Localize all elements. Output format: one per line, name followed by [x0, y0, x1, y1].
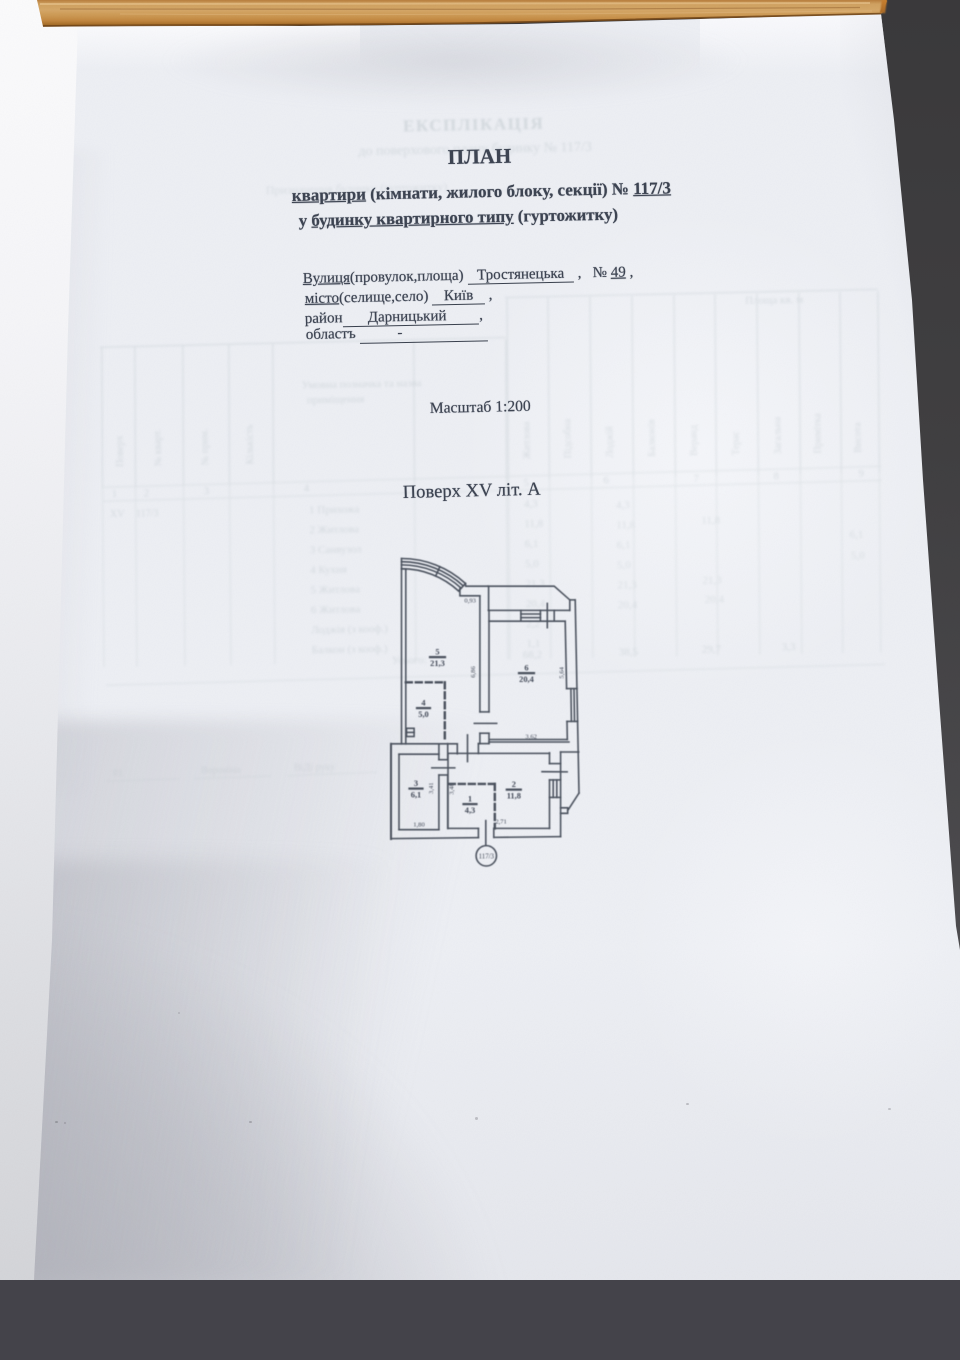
svg-text:11,8: 11,8 [507, 791, 521, 800]
svg-text:1,80: 1,80 [413, 822, 425, 829]
svg-text:117/3: 117/3 [479, 853, 495, 860]
svg-text:3: 3 [414, 779, 418, 788]
svg-text:6: 6 [524, 664, 528, 673]
svg-text:2: 2 [512, 780, 516, 789]
svg-text:5,64: 5,64 [558, 666, 565, 678]
svg-text:5: 5 [435, 648, 439, 657]
svg-text:5,0: 5,0 [418, 710, 428, 719]
svg-text:3,41: 3,41 [428, 782, 435, 794]
svg-text:6,86: 6,86 [470, 666, 477, 678]
svg-text:3,48: 3,48 [449, 783, 456, 795]
svg-text:21,3: 21,3 [430, 659, 445, 668]
svg-text:20,4: 20,4 [519, 675, 534, 684]
svg-text:0,93: 0,93 [464, 598, 476, 605]
svg-text:1: 1 [468, 795, 472, 804]
svg-text:6,1: 6,1 [411, 790, 421, 799]
svg-text:3,62: 3,62 [525, 733, 537, 740]
svg-text:2,71: 2,71 [495, 819, 507, 826]
svg-text:4,3: 4,3 [465, 806, 475, 815]
svg-text:4: 4 [421, 699, 426, 708]
